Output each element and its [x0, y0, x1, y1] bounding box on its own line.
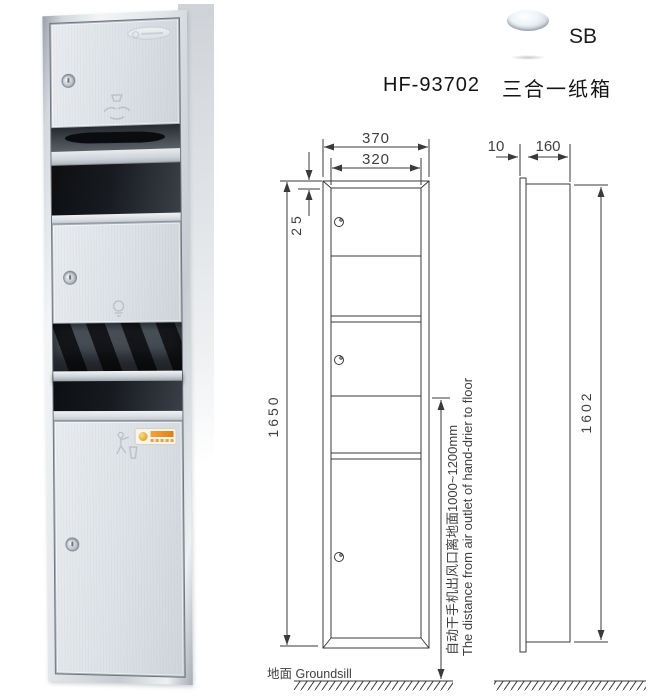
dim-overall-height: [280, 181, 322, 646]
dim-text-160: 160: [535, 138, 560, 155]
dim-text-1650: 1650: [265, 394, 281, 437]
note-english: The distance from air outlet of hand-dri…: [460, 377, 475, 656]
dim-text-1602: 1602: [578, 390, 594, 433]
dim-text-370: 370: [362, 130, 390, 147]
side-view-outline: [520, 178, 570, 652]
note-chinese: 自动干手机出风口离地面1000~1200mm: [445, 425, 460, 655]
ground-front: [294, 681, 453, 691]
technical-drawing: 370 320 25 1650 自动干手机出风口离地面1000~1200mm T…: [0, 0, 660, 700]
ground-label: 地面 Groundsill: [267, 667, 352, 681]
ground-side: [494, 681, 646, 691]
dim-top-inset: [298, 152, 320, 216]
dim-text-10: 10: [488, 138, 505, 155]
front-view-outline: [323, 181, 429, 648]
dim-text-320: 320: [362, 151, 390, 168]
keyhole-marks: [335, 218, 344, 562]
dim-text-25: 25: [288, 212, 304, 236]
page-root: SB HF-93702 三合一纸箱: [0, 0, 660, 700]
